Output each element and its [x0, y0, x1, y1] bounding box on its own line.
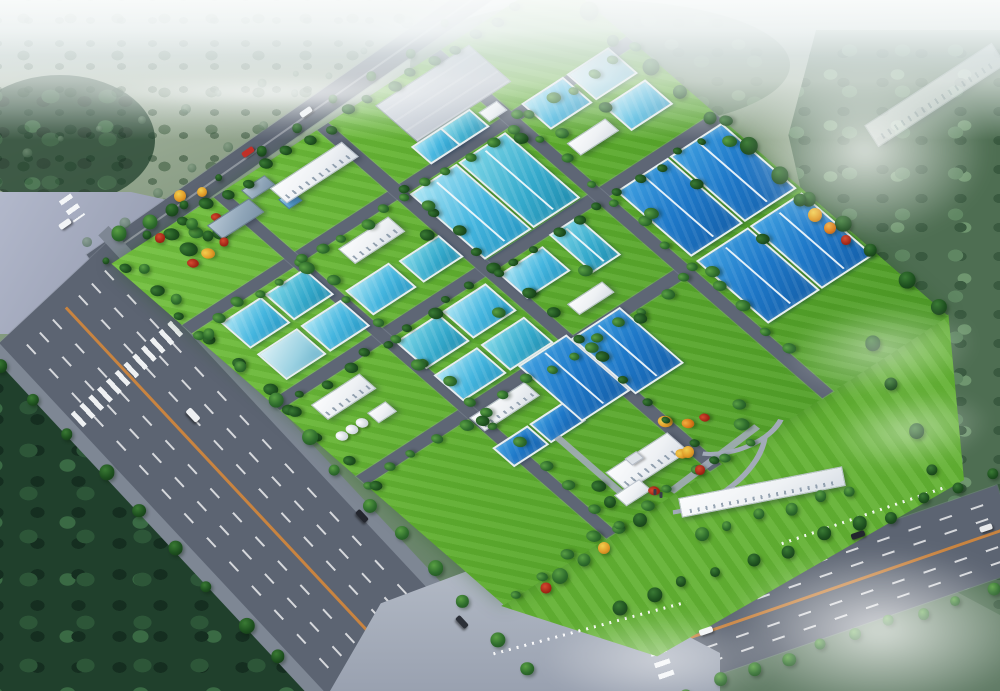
tree [186, 218, 198, 230]
tree [633, 513, 647, 527]
tree-row [952, 483, 963, 494]
tree-row [428, 560, 444, 576]
tree-row [147, 283, 167, 298]
tree-row [153, 188, 163, 198]
process-building [567, 281, 615, 315]
tree-row [223, 142, 233, 152]
tree [552, 568, 568, 584]
red-shrub [185, 257, 201, 269]
red-shrub [220, 238, 229, 247]
tree [143, 215, 158, 230]
mist-patch [500, 595, 820, 691]
aerial-rendering-canvas [0, 0, 1000, 691]
red-shrub [155, 233, 165, 243]
autumn-tree [598, 542, 610, 554]
tree-row [269, 392, 284, 407]
autumn-tree [682, 446, 694, 458]
tree-row [302, 429, 318, 445]
tree [578, 554, 591, 567]
tree-row [340, 454, 358, 468]
autumn-tree [198, 246, 217, 261]
person [660, 492, 663, 498]
tree [203, 231, 214, 242]
tree-row [363, 499, 377, 513]
tree-row [256, 146, 267, 157]
tree [604, 496, 616, 508]
tree-row [168, 541, 183, 556]
autumn-tree [197, 187, 207, 197]
tree-row [215, 174, 223, 182]
tree-row [329, 465, 340, 476]
sky-mist-band [0, 0, 1000, 140]
utility-building [367, 401, 397, 423]
person [654, 489, 657, 495]
tree [166, 204, 179, 217]
tree-row [112, 226, 127, 241]
tree-row [395, 526, 409, 540]
red-shrub [541, 583, 552, 594]
tree [176, 240, 202, 260]
tree-row [785, 503, 798, 516]
tree-row [133, 504, 147, 518]
red-shrub [695, 465, 705, 475]
tree-row [82, 237, 92, 247]
tree-row [142, 230, 151, 239]
